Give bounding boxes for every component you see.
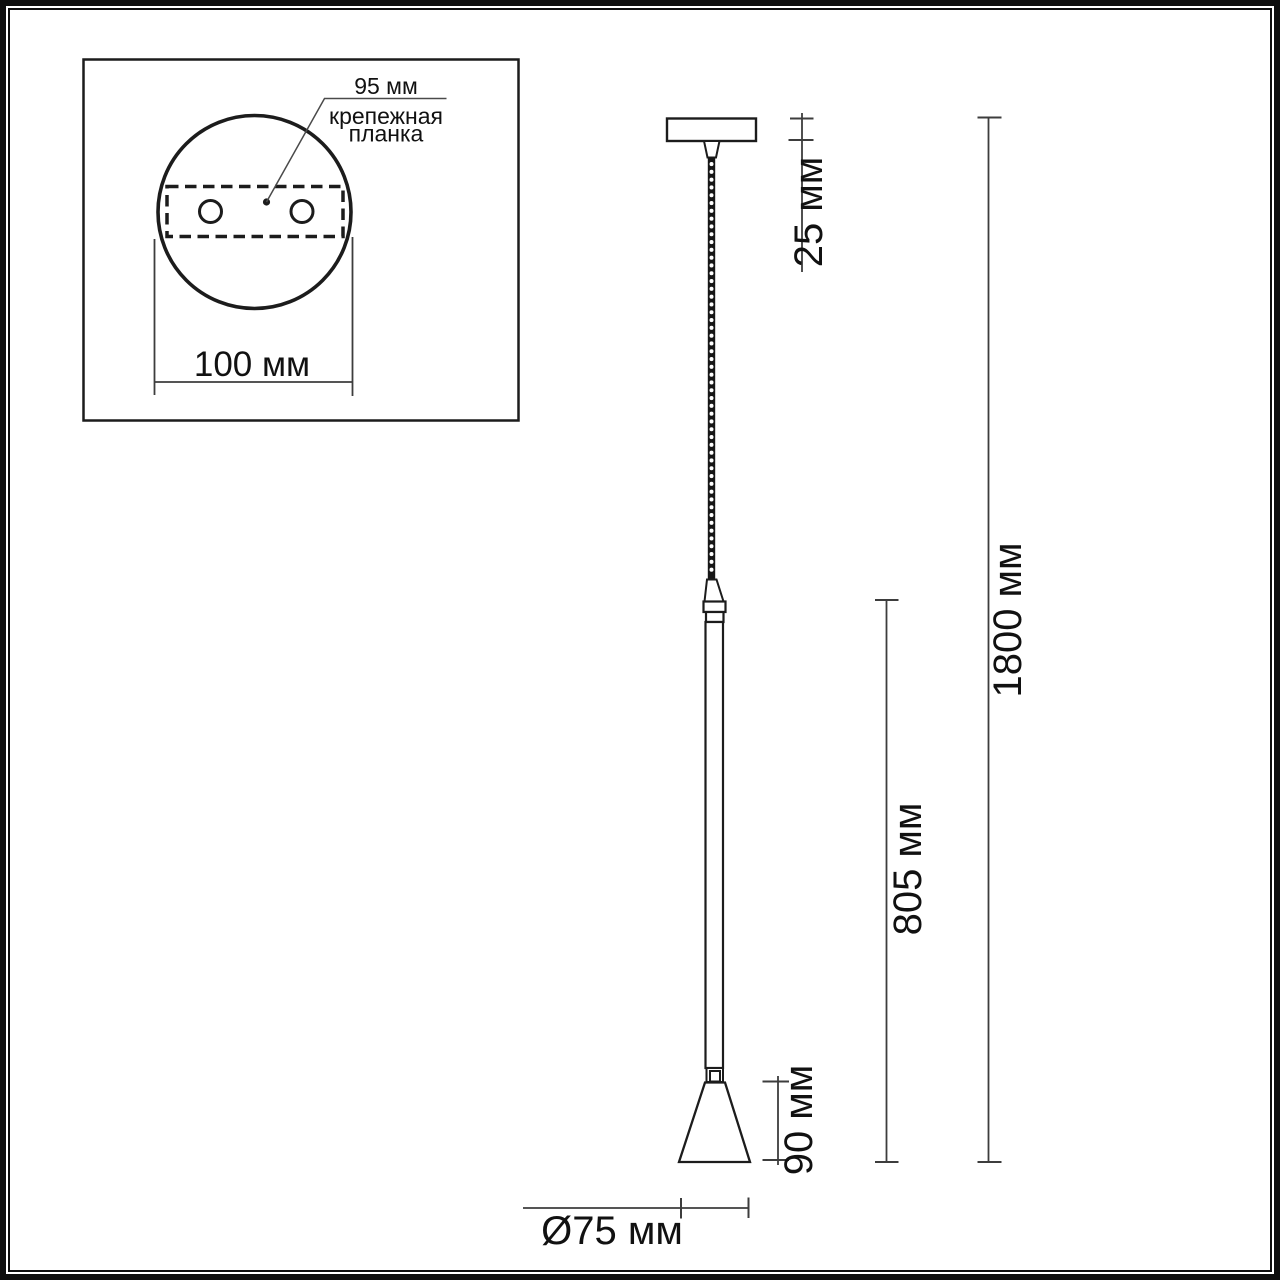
canopy-height-label: 25 мм	[787, 157, 831, 268]
mounting-hole-left	[200, 201, 222, 223]
bracket-label-line2: планка	[349, 121, 424, 147]
mounting-hole-right	[291, 201, 313, 223]
shade-collar-inner	[710, 1071, 720, 1082]
rod-length-label: 805 мм	[886, 803, 930, 936]
pendant-lamp-dimension-diagram: 95 мм крепежная планка 100 мм	[0, 0, 1280, 1280]
canopy-height-dimension: 25 мм	[787, 113, 831, 272]
rod-length-dimension: 805 мм	[875, 600, 930, 1162]
ceiling-plate-circle	[158, 116, 351, 309]
plate-size-label: 95 мм	[354, 73, 418, 99]
pendant-lamp	[667, 119, 756, 1163]
cone-shade	[679, 1083, 750, 1163]
ceiling-canopy	[667, 119, 756, 142]
stem-rod	[706, 622, 724, 1068]
plate-diameter-label: 100 мм	[194, 345, 310, 384]
dimension-annotations: 25 мм 1800 мм 805 мм 90 мм	[523, 113, 1030, 1253]
mounting-plate-inset: 95 мм крепежная планка 100 мм	[84, 60, 519, 421]
overall-height-label: 1800 мм	[986, 542, 1030, 697]
coupler-collar-lower	[706, 612, 724, 622]
coupler-collar-upper	[704, 602, 726, 613]
canopy-cable-connector	[704, 141, 720, 158]
shade-diameter-label: Ø75 мм	[541, 1209, 683, 1253]
technical-drawing-page: 95 мм крепежная планка 100 мм	[0, 0, 1280, 1280]
shade-diameter-dimension: Ø75 мм	[523, 1198, 749, 1254]
overall-height-dimension: 1800 мм	[978, 118, 1031, 1163]
cable-rod-coupler	[705, 580, 724, 602]
shade-height-dimension: 90 мм	[763, 1065, 822, 1176]
shade-height-label: 90 мм	[777, 1065, 821, 1176]
